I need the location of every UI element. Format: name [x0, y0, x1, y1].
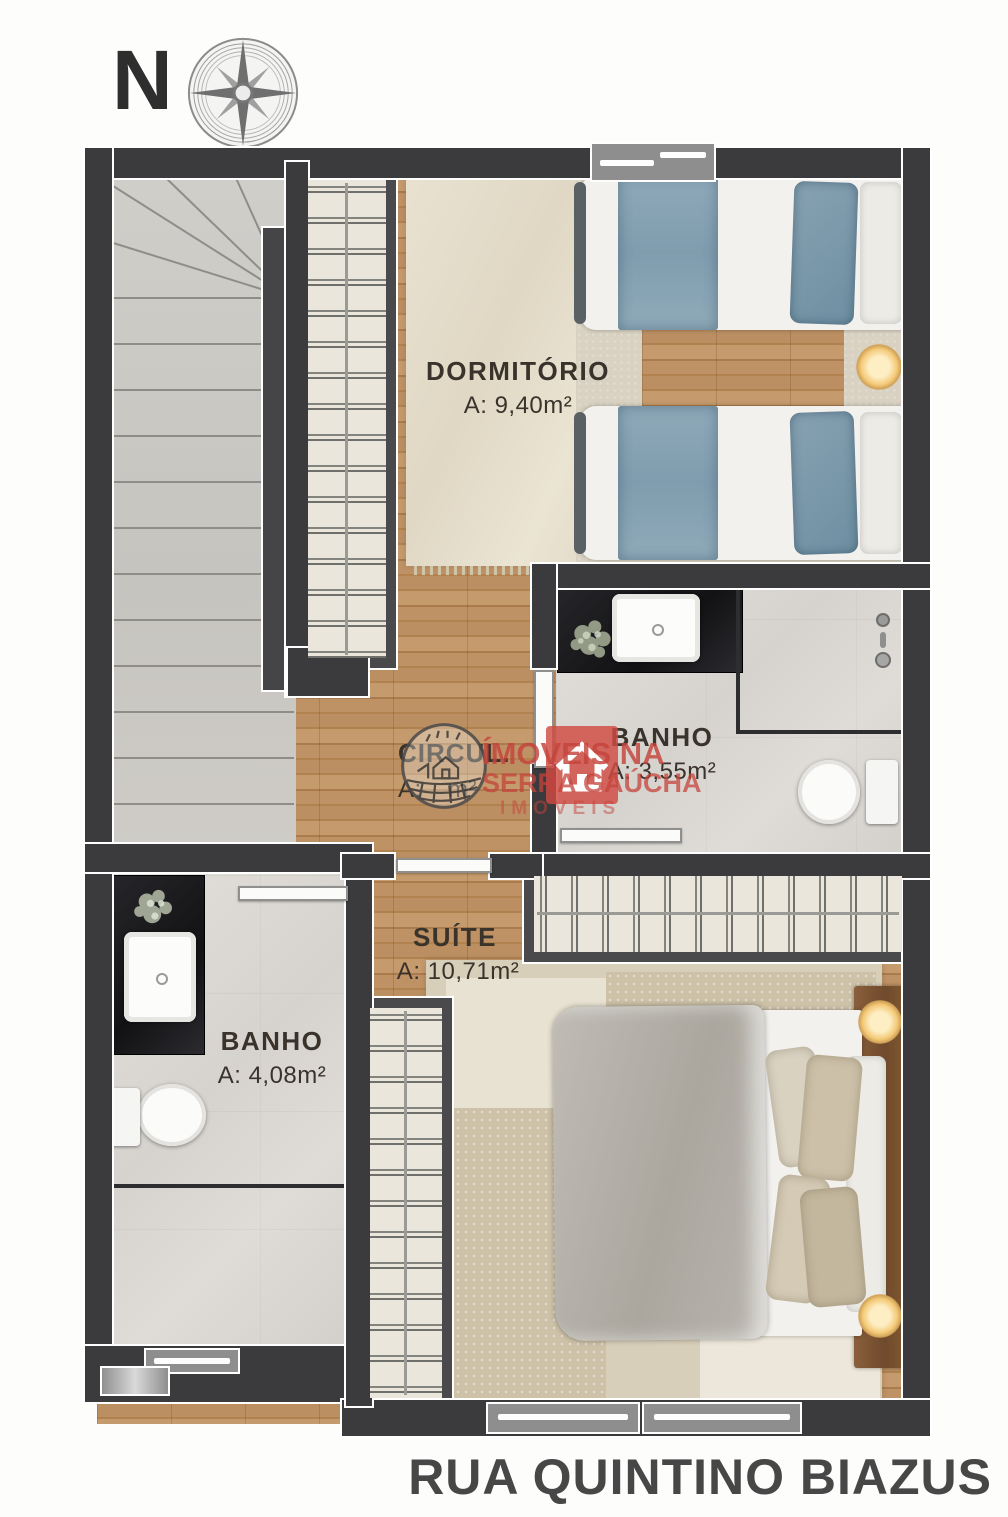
room-label-suite: SUÍTE: [413, 922, 497, 953]
compass-north-label: N: [112, 38, 173, 122]
bed-twin-1-pillow: [790, 181, 859, 325]
room-label-dormitorio: DORMITÓRIO: [426, 356, 610, 387]
wall-banho-superior-bottom: [532, 854, 930, 878]
banho-superior-door-leaf: [560, 828, 682, 843]
room-area-banho-inferior: A: 4,08m²: [218, 1062, 327, 1090]
floor-strip-between-beds: [642, 330, 844, 408]
suite-door-leaf: [396, 858, 492, 873]
wall-banho-superior-top: [532, 564, 930, 588]
bed-twin-1-foot: [574, 182, 586, 324]
banho-inferior-toilet-bowl: [138, 1084, 206, 1146]
bed-twin-2-pillow-white: [860, 412, 902, 554]
bed-suite-pillow: [797, 1054, 864, 1182]
window-suite-1: [488, 1404, 638, 1432]
room-area-suite: A: 10,71m²: [397, 958, 519, 986]
wall-banho-superior-left-a: [532, 564, 556, 668]
wall-suite-entry-a: [342, 854, 394, 878]
banho-superior-toilet-bowl: [798, 760, 860, 824]
wall-suite-entry-b: [490, 854, 542, 878]
window-dormitorio: [592, 144, 714, 180]
bed-suite-duvet: [552, 1005, 767, 1341]
bed-twin-2-blanket: [618, 406, 718, 560]
bed-suite-pillow: [799, 1186, 867, 1309]
nightstand-lamp-suite-bottom: [858, 1294, 902, 1338]
banho-inferior-toilet-tank: [110, 1088, 140, 1146]
window-basement-vent: [102, 1368, 168, 1394]
plant-icon: [564, 610, 620, 668]
wall-right: [903, 148, 930, 1436]
farm-circle-logo-icon: [400, 722, 488, 810]
room-area-dormitorio: A: 9,40m²: [464, 392, 573, 420]
wall-stairs-bottom: [85, 844, 372, 872]
nightstand-lamp-dormitorio: [856, 344, 902, 390]
window-suite-2: [644, 1404, 800, 1432]
floor-plan-page: N: [0, 0, 1008, 1517]
wardrobe-suite-top-hangers: [534, 876, 902, 952]
bed-twin-1-pillow-white: [860, 182, 902, 324]
shower-fixture-icon: [868, 612, 898, 670]
wall-stairs-divider: [286, 162, 308, 696]
banho-inferior-door-leaf: [238, 886, 348, 901]
banho-superior-sink: [612, 594, 700, 662]
watermark-agency-line2: SERRA GAÚCHA: [482, 768, 702, 799]
banho-superior-toilet-tank: [866, 760, 898, 824]
wall-banho-suite-divider: [346, 866, 372, 1406]
room-label-banho-inferior: BANHO: [221, 1026, 324, 1057]
banho-inferior-sink: [124, 932, 196, 1022]
plant-icon: [126, 880, 182, 934]
wall-top: [85, 148, 930, 178]
bed-twin-2-foot: [574, 412, 586, 554]
compass-rose-icon: [184, 34, 302, 152]
shower-glass-divider: [736, 730, 904, 734]
bed-twin-1-blanket: [618, 176, 718, 330]
watermark-agency-line3: IMOVEIS: [500, 798, 621, 820]
wardrobe-dormitorio-hangers: [308, 180, 386, 658]
shower-glass-divider: [112, 1184, 346, 1188]
street-label: RUA QUINTINO BIAZUS: [408, 1448, 992, 1506]
bed-twin-2-pillow: [790, 411, 859, 555]
shower-glass-divider: [736, 586, 740, 734]
wall-left: [85, 148, 112, 1402]
nightstand-lamp-suite-top: [858, 1000, 902, 1044]
wardrobe-suite-left-hangers: [370, 1008, 442, 1398]
watermark-agency-line1: ÍMOVEIS NA: [482, 736, 665, 772]
